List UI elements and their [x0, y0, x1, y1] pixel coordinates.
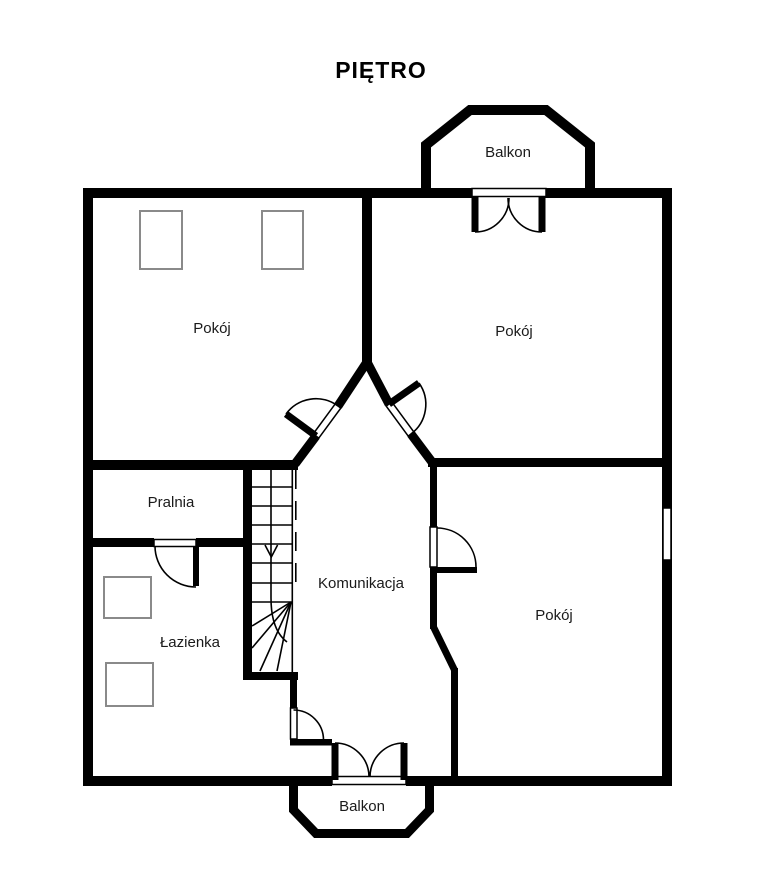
door-threshold: [386, 402, 414, 436]
plan-title: PIĘTRO: [335, 57, 427, 83]
wall-mid-left: [83, 460, 298, 470]
wall-komunikacja-right-mid: [430, 567, 437, 629]
wall-diagonal-left-lower: [295, 436, 316, 464]
wall-understairs-stub: [290, 739, 332, 746]
door-balcony-top: [472, 189, 546, 233]
room-label-pralnia: Pralnia: [148, 494, 195, 511]
door-leaf: [286, 414, 316, 436]
wall-pralnia-right: [243, 460, 252, 680]
door-threshold: [332, 777, 406, 785]
wall-top-right-segment: [545, 188, 672, 198]
door-leaf: [389, 383, 419, 404]
wall-top-rooms-divider: [362, 188, 372, 365]
outer-walls: [83, 188, 672, 786]
wall-komunikacja-right-top: [430, 458, 437, 527]
wall-top-left-segment: [83, 188, 473, 198]
floor-plan: PIĘTRO Pokój Pokój Pralnia Łazienka Komu…: [0, 0, 768, 874]
door-pralnia: [154, 540, 196, 588]
door-swing-arc: [437, 528, 476, 567]
door-swing-arc: [508, 198, 542, 232]
wall-understairs-vertical: [290, 672, 297, 708]
floor-plan-page: PIĘTRO Pokój Pokój Pralnia Łazienka Komu…: [0, 0, 768, 874]
interior-walls: [83, 188, 672, 786]
fixture-rect-pokoj-top-left-1: [140, 211, 182, 269]
door-swing-arc: [155, 546, 196, 587]
wall-diagonal-right-upper: [367, 362, 389, 404]
door-swing-arc: [475, 198, 509, 232]
wall-diagonal-right-lower: [411, 434, 432, 462]
wall-mid-right: [428, 458, 672, 467]
stair-winder-line: [277, 602, 291, 671]
room-label-balkon-top: Balkon: [485, 144, 531, 161]
room-label-pokoj-right: Pokój: [535, 607, 573, 624]
door-threshold: [291, 708, 298, 739]
room-label-komunikacja: Komunikacja: [318, 575, 405, 592]
fixture-rect-pokoj-top-left-2: [262, 211, 303, 269]
room-label-balkon-bottom: Balkon: [339, 798, 385, 815]
wall-pralnia-bottom-left: [83, 538, 154, 547]
door-threshold: [154, 540, 196, 547]
room-label-pokoj-top-left: Pokój: [193, 320, 231, 337]
door-swing-arc: [370, 743, 404, 777]
door-pokoj-right: [430, 527, 477, 570]
wall-stairs-bottom: [243, 672, 298, 680]
wall-komunikacja-jog: [434, 627, 455, 670]
wall-right: [662, 188, 672, 786]
fixture-rect-lazienka-2: [106, 663, 153, 706]
door-pokoj-top-right: [386, 383, 426, 436]
door-threshold: [472, 189, 546, 197]
wall-bottom-right-segment: [406, 776, 672, 786]
wall-left: [83, 188, 93, 786]
wall-diagonal-left-upper: [338, 362, 367, 406]
door-swing-arc: [294, 710, 324, 740]
room-label-pokoj-top-right: Pokój: [495, 323, 533, 340]
door-pokoj-top-left: [286, 399, 341, 438]
window-right-wall: [663, 508, 671, 560]
fixtures: [104, 211, 303, 706]
door-threshold: [430, 527, 437, 567]
fixture-rect-lazienka-1: [104, 577, 151, 618]
staircase: [252, 470, 296, 672]
wall-pralnia-bottom-right: [196, 538, 252, 547]
door-lazienka: [291, 708, 324, 740]
door-swing-arc: [335, 743, 369, 777]
room-label-lazienka: Łazienka: [160, 634, 221, 651]
door-balcony-bottom: [332, 743, 406, 785]
wall-komunikacja-right-bottom: [451, 668, 458, 786]
